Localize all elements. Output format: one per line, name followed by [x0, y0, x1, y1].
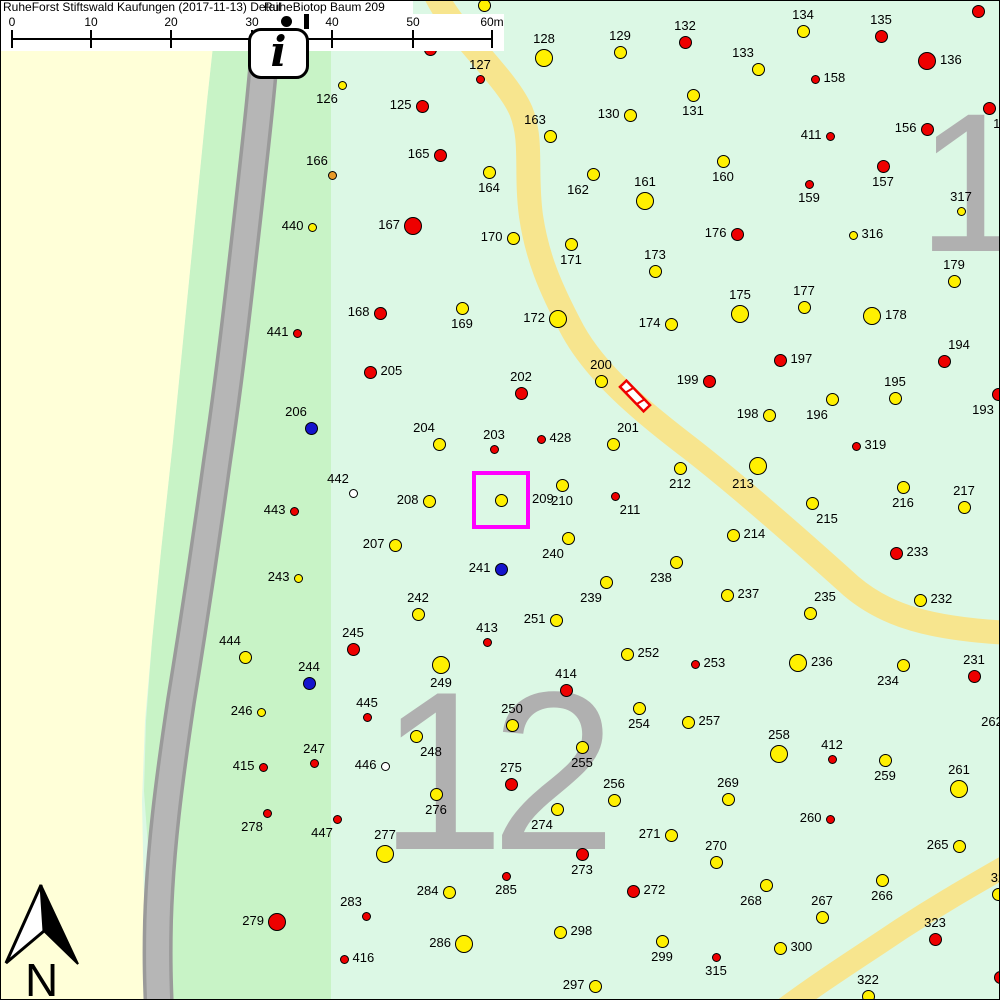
tree-dot-413[interactable]	[483, 638, 492, 647]
tree-dot-273[interactable]	[576, 848, 589, 861]
tree-dot-162[interactable]	[587, 168, 600, 181]
tree-label-201: 201	[593, 421, 663, 435]
tree-dot-446[interactable]	[381, 762, 390, 771]
tree-label-158: 158	[824, 71, 894, 85]
tree-label-242: 242	[383, 591, 453, 605]
tree-label-445: 445	[332, 696, 402, 710]
tree-label-269: 269	[693, 776, 763, 790]
tree-dot-242[interactable]	[412, 608, 425, 621]
tree-label-276: 276	[401, 803, 471, 817]
tree-dot-215[interactable]	[806, 497, 819, 510]
tree-label-239: 239	[556, 591, 626, 605]
tree-dot-132[interactable]	[679, 36, 692, 49]
tree-dot-274[interactable]	[551, 803, 564, 816]
tree-dot-445[interactable]	[363, 713, 372, 722]
tree-label-172: 172	[475, 311, 545, 325]
tree-label-234: 234	[853, 674, 923, 688]
tree-label-232: 232	[931, 592, 1000, 606]
tree-dot-232[interactable]	[914, 594, 927, 607]
tree-dot-212[interactable]	[674, 462, 687, 475]
tree-dot-176[interactable]	[731, 228, 744, 241]
tree-dot-201[interactable]	[607, 438, 620, 451]
tree-dot-444[interactable]	[239, 651, 252, 664]
tree-symbol-icon	[281, 16, 292, 27]
tree-label-215: 215	[792, 512, 862, 526]
tree-dot[interactable]	[478, 0, 491, 12]
tree-dot-255[interactable]	[576, 741, 589, 754]
tree-dot-278[interactable]	[263, 809, 272, 818]
tree-label-157: 157	[848, 175, 918, 189]
tree-dot-209[interactable]	[495, 494, 508, 507]
tree-dot-136[interactable]	[918, 52, 936, 70]
tree-label-231: 231	[939, 653, 1000, 667]
tree-label-447: 447	[287, 826, 357, 840]
tree-label-125: 125	[342, 98, 412, 112]
tree-label-217: 217	[929, 484, 999, 498]
tree-label-240: 240	[518, 547, 588, 561]
tree-label-167: 167	[330, 218, 400, 232]
tree-dot-165[interactable]	[434, 149, 447, 162]
tree-dot-207[interactable]	[389, 539, 402, 552]
tree-dot-171[interactable]	[565, 238, 578, 251]
tree-label-193: 193	[948, 403, 1000, 417]
tree-label-168: 168	[300, 305, 370, 319]
tree-label-412: 412	[797, 738, 867, 752]
boundary-symbol-icon	[304, 14, 309, 29]
tree-label-259: 259	[850, 769, 920, 783]
tree-dot-199[interactable]	[703, 375, 716, 388]
tree-label-173: 173	[620, 248, 690, 262]
tree-dot-234[interactable]	[897, 659, 910, 672]
tree-label-155: 155	[969, 117, 1000, 131]
map-subtitle: RuheBiotop Baum 209	[264, 1, 385, 14]
tree-label-266: 266	[847, 889, 917, 903]
tree-dot-130[interactable]	[624, 109, 637, 122]
tree-dot-412[interactable]	[828, 755, 837, 764]
tree-dot-126[interactable]	[338, 81, 347, 90]
tree-dot-168[interactable]	[374, 307, 387, 320]
tree-dot-235[interactable]	[804, 607, 817, 620]
tree-dot-297[interactable]	[589, 980, 602, 993]
tree-dot-269[interactable]	[722, 793, 735, 806]
tree-dot-252[interactable]	[621, 648, 634, 661]
north-arrow-right-half	[41, 885, 78, 964]
tree-label-261: 261	[924, 763, 994, 777]
info-icon-glyph: i	[271, 31, 287, 73]
tree-label-254: 254	[604, 717, 674, 731]
tree-dot-299[interactable]	[656, 935, 669, 948]
tree-dot-240[interactable]	[562, 532, 575, 545]
tree-dot-174[interactable]	[665, 318, 678, 331]
tree-dot-319[interactable]	[852, 442, 861, 451]
tree-dot-257[interactable]	[682, 716, 695, 729]
scale-tick	[491, 30, 493, 48]
tree-dot-236[interactable]	[789, 654, 807, 672]
tree-dot-214[interactable]	[727, 529, 740, 542]
tree-dot-249[interactable]	[432, 656, 450, 674]
tree-dot-272[interactable]	[627, 885, 640, 898]
tree-dot-266[interactable]	[876, 874, 889, 887]
tree-label-322: 322	[833, 973, 903, 987]
tree-dot-279[interactable]	[268, 913, 286, 931]
tree-label-274: 274	[507, 818, 577, 832]
north-arrow: N	[1, 876, 101, 1000]
tree-dot-414[interactable]	[560, 684, 573, 697]
tree-label-200: 200	[566, 358, 636, 372]
tree-dot-440[interactable]	[308, 223, 317, 232]
tree-dot-443[interactable]	[290, 507, 299, 516]
tree-label-156: 156	[847, 121, 917, 135]
tree-label-214: 214	[744, 527, 814, 541]
tree-label-416: 416	[353, 951, 423, 965]
tree-label-135: 135	[846, 13, 916, 27]
tree-label-297: 297	[515, 978, 585, 992]
tree-label-159: 159	[774, 191, 844, 205]
scale-label: 40	[312, 16, 352, 29]
tree-label-319: 319	[865, 438, 935, 452]
tree-label-131: 131	[658, 104, 728, 118]
tree-dot-160[interactable]	[717, 155, 730, 168]
tree-label-268: 268	[716, 894, 786, 908]
tree-label-283: 283	[316, 895, 386, 909]
tree-dot-251[interactable]	[550, 614, 563, 627]
tree-dot-316[interactable]	[849, 231, 858, 240]
tree-label-132: 132	[650, 19, 720, 33]
tree-label-270: 270	[681, 839, 751, 853]
map-canvas[interactable]: 1 12 12712812912612513013213413513615813…	[0, 0, 1000, 1000]
tree-dot-128[interactable]	[535, 49, 553, 67]
tree-dot-200[interactable]	[595, 375, 608, 388]
tree-dot-156[interactable]	[921, 123, 934, 136]
tree-label-204: 204	[389, 421, 459, 435]
tree-label-160: 160	[688, 170, 758, 184]
tree-dot-233[interactable]	[890, 547, 903, 560]
north-arrow-left-half	[6, 885, 44, 963]
tree-label-213: 213	[708, 477, 778, 491]
tree-dot-202[interactable]	[515, 387, 528, 400]
tree-dot-284[interactable]	[443, 886, 456, 899]
tree-dot-259[interactable]	[879, 754, 892, 767]
tree-dot-158[interactable]	[811, 75, 820, 84]
tree-dot-315[interactable]	[712, 953, 721, 962]
tree-label-415: 415	[185, 759, 255, 773]
tree-label-179: 179	[919, 258, 989, 272]
tree-dot-231[interactable]	[968, 670, 981, 683]
tree-label-205: 205	[381, 364, 451, 378]
tree-label-316: 316	[862, 227, 932, 241]
tree-dot-210[interactable]	[556, 479, 569, 492]
tree-label-241: 241	[421, 561, 491, 575]
tree-dot-179[interactable]	[948, 275, 961, 288]
tree-dot-194[interactable]	[938, 355, 951, 368]
tree-label-216: 216	[868, 496, 938, 510]
tree-dot-243[interactable]	[294, 574, 303, 583]
tree-label-278: 278	[217, 820, 287, 834]
tree-label-208: 208	[349, 493, 419, 507]
tree-dot-271[interactable]	[665, 829, 678, 842]
tree-dot-245[interactable]	[347, 643, 360, 656]
tree-label-199: 199	[629, 373, 699, 387]
tree-dot-276[interactable]	[430, 788, 443, 801]
tree-dot[interactable]	[994, 971, 1000, 984]
tree-label-236: 236	[811, 655, 881, 669]
tree-label-411: 411	[752, 128, 822, 142]
tree-label-175: 175	[705, 288, 775, 302]
tree-label-246: 246	[183, 704, 253, 718]
tree-label-195: 195	[860, 375, 930, 389]
tree-dot-195[interactable]	[889, 392, 902, 405]
tree-dot-267[interactable]	[816, 911, 829, 924]
scale-tick	[412, 30, 414, 48]
tree-dot-260[interactable]	[826, 815, 835, 824]
tree-dot-177[interactable]	[798, 301, 811, 314]
map-title: RuheForst Stiftswald Kaufungen (2017-11-…	[3, 1, 281, 14]
tree-dot-164[interactable]	[483, 166, 496, 179]
tree-dot-248[interactable]	[410, 730, 423, 743]
tree-dot-211[interactable]	[611, 492, 620, 501]
tree-dot-166[interactable]	[328, 171, 337, 180]
scale-label: 60m	[472, 16, 512, 29]
tree-label-243: 243	[220, 570, 290, 584]
tree-label-277: 277	[350, 828, 420, 842]
scale-label: 20	[151, 16, 191, 29]
tree-dot-270[interactable]	[710, 856, 723, 869]
tree-dot-217[interactable]	[958, 501, 971, 514]
tree-dot-172[interactable]	[549, 310, 567, 328]
tree-label-164: 164	[454, 181, 524, 195]
tree-dot-238[interactable]	[670, 556, 683, 569]
tree-dot-131[interactable]	[687, 89, 700, 102]
tree-dot-285[interactable]	[502, 872, 511, 881]
tree-dot-155[interactable]	[983, 102, 996, 115]
scale-label: 10	[71, 16, 111, 29]
tree-label-178: 178	[885, 308, 955, 322]
tree-dot-441[interactable]	[293, 329, 302, 338]
tree-label-170: 170	[433, 230, 503, 244]
tree-dot[interactable]	[972, 5, 985, 18]
tree-label-315: 315	[681, 964, 751, 978]
tree-dot-203[interactable]	[490, 445, 499, 454]
tree-label-134: 134	[768, 8, 838, 22]
tree-dot-175[interactable]	[731, 305, 749, 323]
tree-label-257: 257	[699, 714, 769, 728]
tree-dot-170[interactable]	[507, 232, 520, 245]
tree-label-177: 177	[769, 284, 839, 298]
tree-dot-216[interactable]	[897, 481, 910, 494]
tree-dot-163[interactable]	[544, 130, 557, 143]
tree-label-248: 248	[396, 745, 466, 759]
tree-label-317: 317	[926, 190, 996, 204]
info-icon[interactable]: i	[248, 28, 309, 79]
tree-dot-244[interactable]	[303, 677, 316, 690]
scale-tick	[90, 30, 92, 48]
tree-label-165: 165	[360, 147, 430, 161]
tree-label-233: 233	[907, 545, 977, 559]
tree-dot-173[interactable]	[649, 265, 662, 278]
tree-dot-208[interactable]	[423, 495, 436, 508]
tree-label-267: 267	[787, 894, 857, 908]
tree-label-171: 171	[536, 253, 606, 267]
tree-label-250: 250	[477, 702, 547, 716]
tree-label-198: 198	[689, 407, 759, 421]
tree-label-244: 244	[274, 660, 344, 674]
tree-dot-178[interactable]	[863, 307, 881, 325]
tree-dot-258[interactable]	[770, 745, 788, 763]
tree-label-129: 129	[585, 29, 655, 43]
tree-label-196: 196	[782, 408, 852, 422]
tree-label-212: 212	[645, 477, 715, 491]
tree-label-133: 133	[708, 46, 778, 60]
tree-label-252: 252	[638, 646, 708, 660]
tree-dot-447[interactable]	[333, 815, 342, 824]
tree-label-414: 414	[531, 667, 601, 681]
tree-label-446: 446	[307, 758, 377, 772]
tree-label-441: 441	[219, 325, 289, 339]
tree-label-247: 247	[279, 742, 349, 756]
tree-label-203: 203	[459, 428, 529, 442]
tree-label-279: 279	[194, 914, 264, 928]
tree-dot-159[interactable]	[805, 180, 814, 189]
tree-label-265: 265	[879, 838, 949, 852]
tree-dot-256[interactable]	[608, 794, 621, 807]
tree-dot-416[interactable]	[340, 955, 349, 964]
tree-dot-198[interactable]	[763, 409, 776, 422]
tree-label-442: 442	[303, 472, 373, 486]
tree-dot-411[interactable]	[826, 132, 835, 141]
tree-dot-253[interactable]	[691, 660, 700, 669]
tree-label-197: 197	[791, 352, 861, 366]
tree-dot-246[interactable]	[257, 708, 266, 717]
tree-label-245: 245	[318, 626, 388, 640]
tree-dot-133[interactable]	[752, 63, 765, 76]
tree-label-256: 256	[579, 777, 649, 791]
tree-label-300: 300	[791, 940, 861, 954]
scale-label: 50	[393, 16, 433, 29]
scale-tick	[11, 30, 13, 48]
tree-label-174: 174	[591, 316, 661, 330]
tree-dot-300[interactable]	[774, 942, 787, 955]
tree-dot-135[interactable]	[875, 30, 888, 43]
tree-label-202: 202	[486, 370, 556, 384]
tree-dot-261[interactable]	[950, 780, 968, 798]
tree-label-127: 127	[445, 58, 515, 72]
tree-dot-169[interactable]	[456, 302, 469, 315]
tree-dot-32[interactable]	[992, 888, 1000, 901]
tree-label-161: 161	[610, 175, 680, 189]
tree-dot-283[interactable]	[362, 912, 371, 921]
tree-label-128: 128	[509, 32, 579, 46]
tree-dot-125[interactable]	[416, 100, 429, 113]
tree-label-443: 443	[216, 503, 286, 517]
tree-dot-239[interactable]	[600, 576, 613, 589]
tree-label-136: 136	[940, 53, 1000, 67]
tree-dot-277[interactable]	[376, 845, 394, 863]
tree-label-255: 255	[547, 756, 617, 770]
tree-dot-206[interactable]	[305, 422, 318, 435]
tree-label-166: 166	[282, 154, 352, 168]
tree-label-162: 162	[543, 183, 613, 197]
tree-label-211: 211	[595, 503, 665, 517]
tree-dot-241[interactable]	[495, 563, 508, 576]
tree-dot-275[interactable]	[505, 778, 518, 791]
tree-dot-323[interactable]	[929, 933, 942, 946]
tree-dot-428[interactable]	[537, 435, 546, 444]
tree-label-235: 235	[790, 590, 860, 604]
tree-dot-197[interactable]	[774, 354, 787, 367]
tree-label-194: 194	[924, 338, 994, 352]
tree-label-260: 260	[752, 811, 822, 825]
tree-label-298: 298	[571, 924, 641, 938]
tree-label-238: 238	[626, 571, 696, 585]
tree-label-32: 32	[963, 871, 1000, 885]
tree-dot-193[interactable]	[992, 388, 1000, 401]
tree-dot-129[interactable]	[614, 46, 627, 59]
north-label: N	[25, 954, 58, 1000]
tree-dot-298[interactable]	[554, 926, 567, 939]
tree-dot-167[interactable]	[404, 217, 422, 235]
tree-label-249: 249	[406, 676, 476, 690]
tree-dot-161[interactable]	[636, 192, 654, 210]
tree-dot-415[interactable]	[259, 763, 268, 772]
tree-dot-127[interactable]	[476, 75, 485, 84]
tree-dot-254[interactable]	[633, 702, 646, 715]
tree-label-440: 440	[234, 219, 304, 233]
tree-label-413: 413	[452, 621, 522, 635]
scale-tick	[331, 30, 333, 48]
tree-label-275: 275	[476, 761, 546, 775]
scale-tick	[170, 30, 172, 48]
tree-dot-322[interactable]	[862, 990, 875, 1000]
tree-label-253: 253	[704, 656, 774, 670]
tree-label-163: 163	[500, 113, 570, 127]
tree-label-286: 286	[381, 936, 451, 950]
tree-dot-237[interactable]	[721, 589, 734, 602]
tree-dot-196[interactable]	[826, 393, 839, 406]
tree-label-271: 271	[591, 827, 661, 841]
tree-dot-268[interactable]	[760, 879, 773, 892]
scale-label: 0	[0, 16, 32, 29]
tree-label-176: 176	[657, 226, 727, 240]
tree-label-323: 323	[900, 916, 970, 930]
tree-label-206: 206	[261, 405, 331, 419]
tree-label-444: 444	[195, 634, 265, 648]
tree-dot-250[interactable]	[506, 719, 519, 732]
tree-dot-265[interactable]	[953, 840, 966, 853]
tree-dot-286[interactable]	[455, 935, 473, 953]
tree-label-285: 285	[471, 883, 541, 897]
tree-dot-157[interactable]	[877, 160, 890, 173]
tree-dot-204[interactable]	[433, 438, 446, 451]
tree-dot-317[interactable]	[957, 207, 966, 216]
tree-label-210: 210	[527, 494, 597, 508]
tree-dot-213[interactable]	[749, 457, 767, 475]
tree-label-262: 262	[957, 715, 1000, 729]
tree-dot-134[interactable]	[797, 25, 810, 38]
tree-dot-205[interactable]	[364, 366, 377, 379]
tree-label-272: 272	[644, 883, 714, 897]
tree-label-207: 207	[315, 537, 385, 551]
tree-label-273: 273	[547, 863, 617, 877]
tree-label-299: 299	[627, 950, 697, 964]
